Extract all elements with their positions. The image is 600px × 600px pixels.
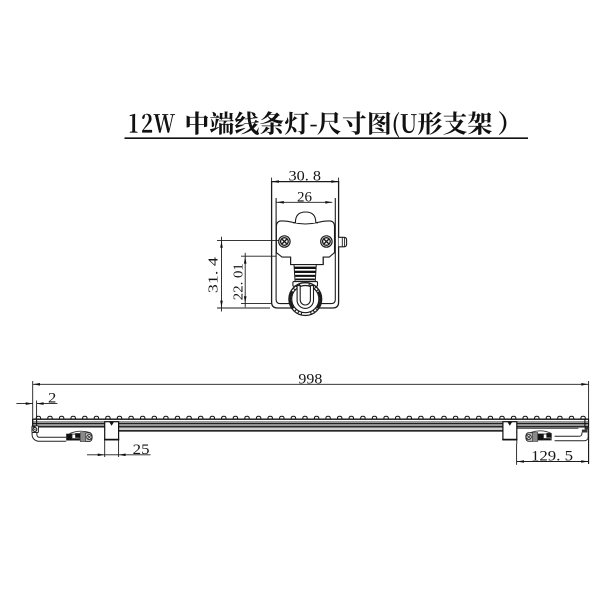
svg-text:30. 8: 30. 8 [289,169,322,185]
svg-text:31. 4: 31. 4 [207,257,222,293]
svg-text:998: 998 [298,372,322,388]
svg-text:129. 5: 129. 5 [531,448,573,464]
svg-text:22. 01: 22. 01 [231,263,246,300]
svg-text:26: 26 [297,189,313,205]
svg-text:25: 25 [133,442,150,458]
svg-text:2: 2 [48,391,56,407]
